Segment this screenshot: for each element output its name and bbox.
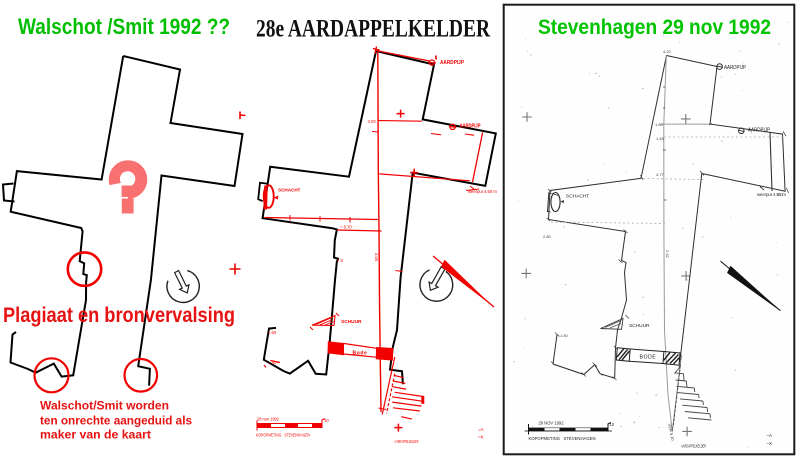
svg-text:=K: =K bbox=[478, 435, 485, 440]
svg-text:SCHUUR: SCHUUR bbox=[341, 319, 362, 325]
svg-text:1.50: 1.50 bbox=[560, 333, 569, 338]
svg-text:1.45: 1.45 bbox=[656, 136, 665, 141]
svg-text:AARDPIJP: AARDPIJP bbox=[460, 124, 482, 130]
svg-text:Plagiaat en bronvervalsing: Plagiaat en bronvervalsing bbox=[3, 304, 235, 327]
svg-text:KOPOPMETING STEVENHAGEN: KOPOPMETING STEVENHAGEN bbox=[256, 433, 310, 438]
svg-text:2.0: 2.0 bbox=[777, 192, 783, 197]
svg-text:AARDAPPELKELDER: AARDAPPELKELDER bbox=[395, 439, 419, 444]
svg-text:4.77: 4.77 bbox=[656, 172, 665, 177]
svg-text:SCHUUR: SCHUUR bbox=[629, 323, 650, 329]
svg-text:KOPOPMETING STEVENHAGEN: KOPOPMETING STEVENHAGEN bbox=[529, 436, 596, 442]
svg-text:28 nov 1992: 28 nov 1992 bbox=[257, 417, 280, 422]
svg-text:2.80: 2.80 bbox=[543, 234, 552, 239]
svg-text:Stevenhagen 29 nov 1992: Stevenhagen 29 nov 1992 bbox=[538, 15, 771, 39]
svg-text:=A: =A bbox=[478, 427, 485, 432]
svg-text:1.80: 1.80 bbox=[655, 122, 664, 127]
svg-text:BODE: BODE bbox=[640, 355, 657, 361]
svg-text:maker van de kaart: maker van de kaart bbox=[40, 428, 151, 442]
svg-text:SCHACHT: SCHACHT bbox=[566, 194, 589, 200]
svg-text:3.00: 3.00 bbox=[368, 119, 377, 124]
svg-text:10: 10 bbox=[610, 422, 615, 427]
svg-text:Walschot /Smit 1992 ??: Walschot /Smit 1992 ?? bbox=[18, 14, 230, 39]
svg-text:29 NOV 1992: 29 NOV 1992 bbox=[539, 421, 564, 426]
svg-text:= 6.70: = 6.70 bbox=[340, 225, 352, 230]
svg-text:AARDAPPELKELDER: AARDAPPELKELDER bbox=[681, 444, 706, 449]
svg-text:ten onrechte aangeduid als: ten onrechte aangeduid als bbox=[40, 414, 192, 428]
svg-text:2.42: 2.42 bbox=[665, 250, 670, 259]
svg-text:10: 10 bbox=[324, 418, 329, 423]
svg-text:–A: –A bbox=[767, 433, 774, 438]
svg-text:4.20: 4.20 bbox=[663, 49, 672, 54]
svg-text:SCHACHT: SCHACHT bbox=[278, 188, 301, 193]
svg-text:Walschot/Smit worden: Walschot/Smit worden bbox=[40, 399, 169, 413]
svg-text:28e AARDAPPELKELDER: 28e AARDAPPELKELDER bbox=[256, 16, 491, 43]
svg-text:= 50+: = 50+ bbox=[268, 360, 279, 365]
svg-text:AARDPIJP: AARDPIJP bbox=[724, 65, 747, 71]
svg-text:–X: –X bbox=[767, 441, 773, 446]
svg-text:3.06: 3.06 bbox=[374, 253, 379, 262]
svg-text:Bode: Bode bbox=[353, 351, 368, 357]
svg-text:1.50: 1.50 bbox=[268, 330, 277, 335]
svg-text:7.6: 7.6 bbox=[337, 258, 343, 263]
svg-text:AARDPIJP: AARDPIJP bbox=[440, 60, 465, 66]
